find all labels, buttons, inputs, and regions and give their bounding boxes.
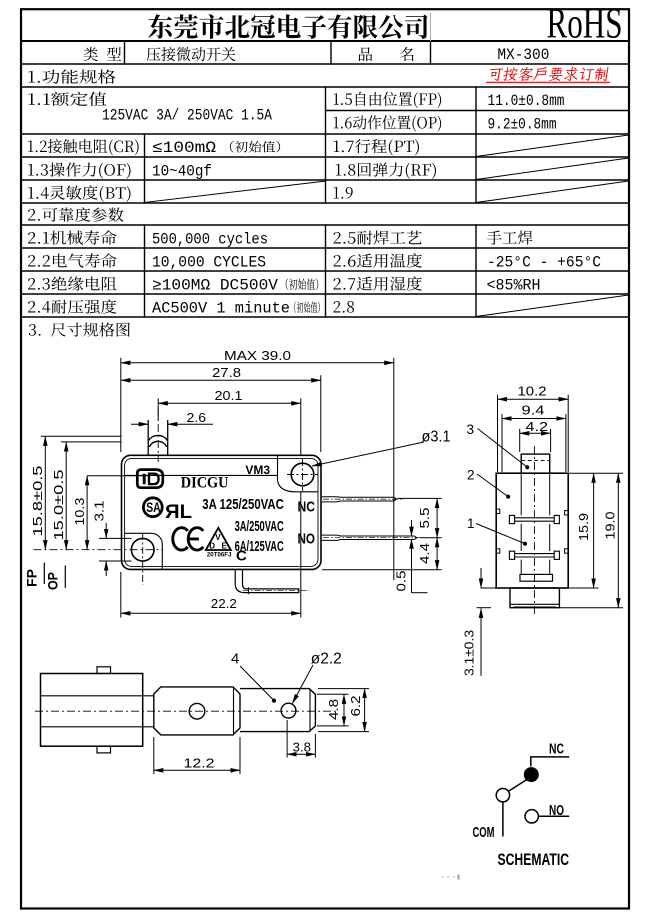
svg-text:9.2±0.8mm: 9.2±0.8mm <box>488 115 557 133</box>
svg-text:10~40gf: 10~40gf <box>152 163 212 181</box>
svg-text:V: V <box>215 533 221 542</box>
svg-text:C: C <box>236 548 247 565</box>
svg-text:NC: NC <box>298 499 316 516</box>
svg-text:10.2: 10.2 <box>518 383 547 398</box>
svg-text:D: D <box>209 542 215 551</box>
svg-text:4: 4 <box>231 651 239 668</box>
svg-text:SCHEMATIC: SCHEMATIC <box>498 851 570 869</box>
svg-text:<85%RH: <85%RH <box>487 277 541 295</box>
svg-text:3.8: 3.8 <box>293 740 312 755</box>
svg-text:10.3: 10.3 <box>72 498 87 526</box>
svg-text:NO: NO <box>298 531 316 548</box>
svg-text:AC500V 1 minute: AC500V 1 minute <box>152 300 290 318</box>
svg-text:4.8: 4.8 <box>326 699 341 720</box>
svg-text:27.8: 27.8 <box>212 365 241 380</box>
svg-text:10,000 CYCLES: 10,000 CYCLES <box>152 254 266 272</box>
svg-text:ø2.2: ø2.2 <box>311 651 342 668</box>
svg-text:19.0: 19.0 <box>603 512 618 540</box>
svg-text:ø3.1: ø3.1 <box>422 429 451 446</box>
svg-text:12.2: 12.2 <box>184 756 215 771</box>
svg-text:E: E <box>222 542 228 551</box>
svg-text:MAX 39.0: MAX 39.0 <box>224 348 291 363</box>
svg-text:9.4: 9.4 <box>522 403 545 418</box>
svg-text:≥100MΩ DC500V: ≥100MΩ DC500V <box>152 277 279 295</box>
svg-text:6.2: 6.2 <box>348 696 363 717</box>
svg-text:DICGU: DICGU <box>181 474 229 491</box>
svg-text:2: 2 <box>467 467 475 482</box>
svg-text:15.8±0.5: 15.8±0.5 <box>30 466 45 537</box>
svg-text:4.2: 4.2 <box>526 419 549 434</box>
svg-text:OP: OP <box>46 572 61 590</box>
svg-text:3A 125/250VAC: 3A 125/250VAC <box>202 496 284 513</box>
svg-text:NC: NC <box>549 742 564 758</box>
svg-text:3: 3 <box>467 422 475 437</box>
svg-text:COM: COM <box>473 825 495 841</box>
svg-text:3.1: 3.1 <box>92 501 107 522</box>
svg-text:3.1±0.3: 3.1±0.3 <box>462 630 477 676</box>
svg-text:FP: FP <box>25 569 40 587</box>
svg-text:5.5: 5.5 <box>417 508 432 529</box>
svg-text:20T06FJ: 20T06FJ <box>207 552 232 559</box>
svg-text:15.0±0.5: 15.0±0.5 <box>51 470 66 541</box>
svg-text:SA: SA <box>146 500 161 515</box>
svg-text:125VAC 3A/ 250VAC 1.5A: 125VAC 3A/ 250VAC 1.5A <box>102 107 273 125</box>
svg-text:0.5: 0.5 <box>394 571 409 592</box>
svg-text:MX-300: MX-300 <box>497 46 549 64</box>
svg-text:1: 1 <box>467 516 475 531</box>
svg-text:22.2: 22.2 <box>211 596 237 611</box>
svg-text:500,000 cycles: 500,000 cycles <box>152 231 268 249</box>
svg-text:20.1: 20.1 <box>215 388 243 403</box>
svg-text:2.6: 2.6 <box>187 410 207 425</box>
svg-text:RoHS: RoHS <box>547 1 623 48</box>
svg-text:11.0±0.8mm: 11.0±0.8mm <box>488 92 565 110</box>
svg-text:-25°C - +65°C: -25°C - +65°C <box>487 254 601 272</box>
svg-text:3A/250VAC: 3A/250VAC <box>235 519 285 535</box>
svg-text:ЯL: ЯL <box>165 502 192 523</box>
svg-text:VM3: VM3 <box>245 465 270 477</box>
svg-text:≤100mΩ: ≤100mΩ <box>152 139 216 157</box>
svg-text:4.4: 4.4 <box>417 543 432 564</box>
svg-text:15.9: 15.9 <box>576 513 591 541</box>
